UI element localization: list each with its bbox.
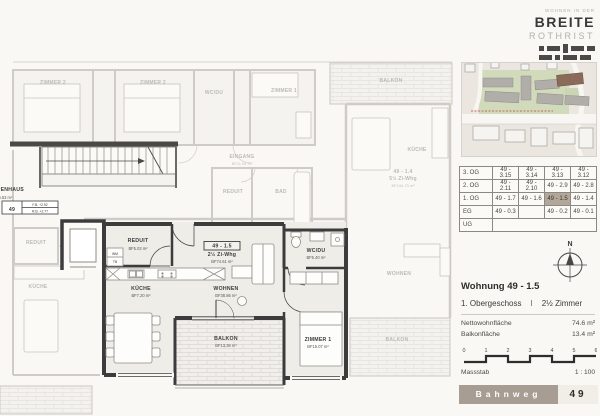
plan-label: ZIMMER 2 [140, 80, 166, 86]
unit-floor: 1. Obergeschoss [461, 299, 521, 308]
logo-blocks-icon [539, 44, 595, 62]
unit-cell-empty [519, 206, 545, 219]
plan-label: 49 [9, 207, 15, 213]
plan-label: R.B. +2.77 [32, 210, 48, 214]
site-map [461, 62, 597, 157]
floor-label: 3. OG [460, 167, 493, 180]
plan-label: F.B. +2.92 [32, 203, 47, 207]
unit-cell: 49 - 2.9 [545, 180, 571, 193]
plan-label: BF5.03 m² [128, 246, 148, 251]
plan-label: WC/DU [205, 90, 223, 96]
plan-label: BAD [275, 189, 287, 195]
area-list: Nettowohnfläche74.6 m²Balkonfläche13.4 m… [461, 319, 595, 340]
plan-label: REDUIT [223, 189, 243, 195]
logo-title: BREITE [529, 14, 595, 30]
unit-cell: 49 - 1.6 [519, 193, 545, 206]
area-row: Balkonfläche13.4 m² [461, 330, 595, 341]
unit-cell: 49 - 3.12 [571, 167, 597, 180]
area-label: Nettowohnfläche [461, 319, 512, 330]
scale-tick: 3 [529, 348, 532, 354]
scale-tick: 1 [485, 348, 488, 354]
address-street: Bahnweg [459, 385, 558, 404]
elevator [62, 221, 104, 270]
unit-cell: 49 - 0.1 [571, 206, 597, 219]
floor-row: UG [460, 219, 597, 232]
area-label: Balkonfläche [461, 330, 500, 341]
scale-tick: 4 [551, 348, 554, 354]
unit-cell: 49 - 3.13 [545, 167, 571, 180]
plan-label: BALKON [214, 336, 238, 342]
subtitle-separator: I [530, 299, 532, 308]
unit-subtitle: 1. ObergeschossI2½ Zimmer [461, 299, 582, 308]
scale-bar: 0 1 2 3 4 5 6 [461, 346, 597, 370]
scale-caption: Massstab 1 : 100 [461, 369, 595, 376]
unit-cell: 49 - 1.4 [571, 193, 597, 206]
plan-label: WM [112, 252, 118, 256]
plan-label: BF15.07 m² [307, 344, 329, 349]
divider [461, 314, 595, 315]
highlighted-building [557, 73, 584, 87]
plan-label: KÜCHE [131, 285, 151, 292]
floor-row: 1. OG49 - 1.749 - 1.649 - 1.549 - 1.4 [460, 193, 597, 206]
plan-label: 49 - 1.4 [394, 169, 413, 175]
address-number: 49 [558, 385, 598, 404]
floor-label: UG [460, 219, 493, 232]
plan-label: ZIMMER 1 [271, 88, 297, 94]
floor-row: 3. OG49 - 3.1549 - 3.1449 - 3.1349 - 3.1… [460, 167, 597, 180]
floor-row: 2. OG49 - 2.1149 - 2.1049 - 2.949 - 2.8 [460, 180, 597, 193]
logo-subtitle: ROTHRIST [529, 31, 595, 41]
plan-label: 5½ Zi-Whg [389, 175, 417, 182]
plan-label: BALKON [386, 337, 409, 343]
unit-title: Wohnung 49 - 1.5 [461, 281, 539, 292]
north-arrow: N [547, 236, 593, 286]
area-value: 13.4 m² [572, 330, 595, 341]
floor-plan: REDUITBF5.03 m²KÜCHEBF7.20 m²WOHNENBF38.… [0, 0, 458, 416]
unit-rooms: 2½ Zimmer [542, 299, 582, 308]
plan-label: BF106.73 m² [391, 183, 415, 188]
unit-cell-selected: 49 - 1.5 [545, 193, 571, 206]
plan-label: ZIMMER 1 [305, 337, 332, 343]
unit-cell: 49 - 2.10 [519, 180, 545, 193]
plan-sheet: REDUITBF5.03 m²KÜCHEBF7.20 m²WOHNENBF38.… [0, 0, 600, 416]
unit-cell: 49 - 3.15 [493, 167, 519, 180]
unit-cell: 49 - 1.7 [493, 193, 519, 206]
north-label: N [567, 241, 572, 248]
plan-label: BF38.86 m² [215, 293, 237, 298]
address-bar: Bahnweg 49 [459, 385, 598, 404]
unit-table: 3. OG49 - 3.1549 - 3.1449 - 3.1349 - 3.1… [459, 166, 597, 232]
floor-label: 2. OG [460, 180, 493, 193]
plan-label: WC/DU [307, 248, 326, 254]
plan-label: KÜCHE [407, 146, 426, 153]
floor-row: EG49 - 0.349 - 0.249 - 0.1 [460, 206, 597, 219]
plan-label: WOHNEN [213, 286, 238, 292]
area-value: 74.6 m² [572, 319, 595, 330]
staircase [10, 144, 178, 188]
scale-label: Massstab [461, 369, 489, 376]
unit-cell: 49 - 0.3 [493, 206, 519, 219]
plan-label: WOHNEN [387, 271, 411, 277]
scale-tick: 6 [595, 348, 598, 354]
scale-tick: 5 [573, 348, 576, 354]
logo-tagline: WOHNEN IN DER [529, 8, 595, 13]
plan-label: F24.53 m² [0, 195, 13, 200]
logo: WOHNEN IN DER BREITE ROTHRIST [529, 8, 595, 62]
plan-label: KÜCHE [28, 283, 47, 290]
scale-tick: 2 [507, 348, 510, 354]
scale-ratio: 1 : 100 [575, 369, 595, 376]
plan-label: TREPPENHAUS [0, 187, 24, 193]
plan-label: TB [113, 260, 118, 264]
plan-label: REDUIT [26, 240, 46, 246]
plan-label: BF7.20 m² [131, 293, 151, 298]
neighbor-balcony-right [350, 318, 450, 376]
plan-label: REDUIT [128, 238, 149, 244]
sidebar: WOHNEN IN DER BREITE ROTHRIST [458, 0, 600, 416]
plan-label: ZIMMER 2 [40, 80, 66, 86]
scale-tick: 0 [463, 348, 466, 354]
unit-cell: 49 - 0.2 [545, 206, 571, 219]
plan-label: BF74.61 m² [211, 259, 233, 264]
unit-cell: 49 - 2.11 [493, 180, 519, 193]
neighbor-balcony-left [0, 386, 92, 414]
plan-label: BF13.36 m² [215, 343, 237, 348]
plan-label: 49 - 1.5 [212, 244, 232, 250]
plan-label: EINGANG [229, 154, 254, 160]
plan-label: BALKON [380, 78, 403, 84]
floor-label: EG [460, 206, 493, 219]
plan-label: BF5.40 m² [306, 255, 326, 260]
unit-cell-empty [493, 219, 597, 232]
plan-label: 2½ Zi-Whg [208, 251, 236, 258]
floor-label: 1. OG [460, 193, 493, 206]
main-balcony [175, 318, 284, 385]
plan-label: BF11.94 m² [232, 161, 253, 166]
unit-cell: 49 - 2.8 [571, 180, 597, 193]
unit-cell: 49 - 3.14 [519, 167, 545, 180]
area-row: Nettowohnfläche74.6 m² [461, 319, 595, 330]
